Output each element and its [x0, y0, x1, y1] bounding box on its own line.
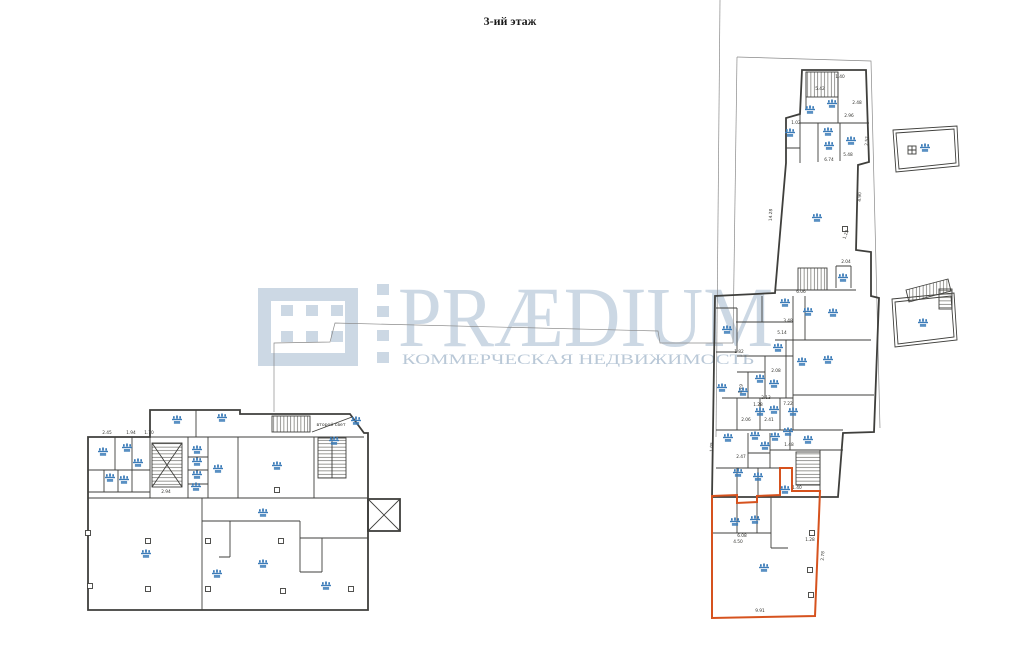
column-symbol — [86, 531, 91, 536]
column-symbol — [146, 587, 151, 592]
dimension-label: 6.74 — [824, 157, 834, 163]
room-marker — [783, 428, 793, 436]
room-marker — [755, 408, 765, 416]
room-marker — [805, 106, 815, 114]
dimension-label: 14.28 — [768, 208, 774, 221]
dimension-label: 2.78 — [820, 551, 827, 561]
left-building-plan: второй свет — [88, 410, 400, 610]
room-marker — [717, 384, 727, 392]
dimension-label: 2.47 — [736, 454, 746, 460]
dimension-label: 2.52 — [864, 136, 871, 146]
staircase — [939, 289, 952, 309]
room-marker — [172, 416, 182, 424]
watermark-tagline: КОММЕРЧЕСКАЯ НЕДВИЖИМОСТЬ — [402, 352, 755, 368]
room-marker — [755, 375, 765, 383]
dimension-label: 3.48 — [783, 318, 793, 324]
room-marker — [258, 560, 268, 568]
room-marker — [788, 408, 798, 416]
dimension-label: 4.50 — [733, 539, 743, 545]
room-marker — [838, 274, 848, 282]
dimension-label: 1.70 — [144, 430, 154, 436]
room-marker — [812, 214, 822, 222]
column-symbol — [809, 593, 814, 598]
scanned-floorplan-page: 3-ий этаж PRÆDIUM КОММЕРЧЕСКАЯ НЕДВИЖИМО… — [0, 0, 1024, 649]
column-symbol — [206, 587, 211, 592]
highlighted-area — [712, 468, 820, 618]
staircase — [796, 452, 820, 485]
dimension-label: 1.82 — [734, 349, 744, 355]
room-marker — [769, 380, 779, 388]
column-symbol — [146, 539, 151, 544]
room-marker — [773, 344, 783, 352]
room-marker — [122, 444, 132, 452]
room-marker — [213, 465, 223, 473]
room-marker — [217, 414, 227, 422]
dimension-label: 1.28 — [753, 402, 763, 408]
room-marker — [730, 518, 740, 526]
praedium-logo-icon — [258, 284, 389, 366]
room-marker — [918, 319, 928, 327]
room-marker — [823, 128, 833, 136]
floor-plan-svg: 3-ий этаж PRÆDIUM КОММЕРЧЕСКАЯ НЕДВИЖИМО… — [0, 0, 1024, 649]
room-marker — [827, 100, 837, 108]
dimension-label: 5.48 — [843, 152, 853, 158]
dimension-label: 2.06 — [741, 417, 751, 423]
column-symbol — [88, 584, 93, 589]
dimension-label: 6.06 — [796, 289, 806, 295]
room-marker — [192, 471, 202, 479]
column-symbol — [808, 568, 813, 573]
room-marker — [750, 432, 760, 440]
column-symbol — [275, 488, 280, 493]
dimension-label: 6.08 — [737, 533, 747, 539]
dimension-label: 2.45 — [102, 430, 112, 436]
room-marker — [770, 433, 780, 441]
dimension-label: 5.14 — [777, 330, 787, 336]
column-symbol — [281, 589, 286, 594]
second-light-label: второй свет — [316, 421, 345, 428]
dimension-label: 1.40 — [835, 74, 845, 80]
room-marker — [192, 446, 202, 454]
dimension-label: 2.08 — [771, 368, 781, 374]
room-marker — [105, 474, 115, 482]
column-symbol — [206, 539, 211, 544]
room-marker — [780, 486, 790, 494]
room-marker — [141, 550, 151, 558]
dimension-label: 2.96 — [844, 113, 854, 119]
dimension-label: 1.02 — [791, 120, 801, 126]
room-marker — [733, 469, 743, 477]
dimension-label: 2.13 — [761, 395, 771, 401]
room-marker — [823, 356, 833, 364]
room-marker — [119, 476, 129, 484]
room-marker — [272, 462, 282, 470]
room-marker — [769, 406, 779, 414]
room-marker — [846, 137, 856, 145]
watermark: PRÆDIUM КОММЕРЧЕСКАЯ НЕДВИЖИМОСТЬ — [258, 269, 773, 368]
room-marker — [191, 483, 201, 491]
staircase — [806, 72, 838, 97]
dimension-label: 1.40 — [792, 485, 802, 491]
detached-rooms — [892, 126, 959, 347]
room-marker — [212, 570, 222, 578]
room-marker — [750, 516, 760, 524]
room-marker — [98, 448, 108, 456]
dimension-label: 4.90 — [857, 192, 863, 202]
room-marker — [351, 417, 361, 425]
staircase — [272, 416, 310, 432]
room-marker — [753, 473, 763, 481]
page-title: 3-ий этаж — [484, 14, 537, 28]
dimension-label: 1.19 — [737, 383, 745, 394]
equipment-symbol — [908, 146, 916, 154]
room-marker — [780, 299, 790, 307]
staircase — [798, 268, 827, 290]
dimension-label: 1.05 — [709, 442, 715, 452]
column-symbol — [810, 531, 815, 536]
column-symbol — [279, 539, 284, 544]
room-marker — [133, 459, 143, 467]
dimension-label: 9.91 — [755, 608, 765, 614]
room-marker — [920, 144, 930, 152]
column-symbol — [349, 587, 354, 592]
dimension-label: 2.48 — [852, 100, 862, 106]
room-marker — [824, 142, 834, 150]
dimension-label: 5.42 — [815, 86, 825, 92]
dimension-label: 1.28 — [805, 537, 815, 543]
dimension-label: 2.04 — [841, 259, 851, 265]
dimension-label: 2.94 — [161, 489, 171, 495]
dimension-label: 1.94 — [126, 430, 136, 436]
room-marker — [797, 358, 807, 366]
dimension-label: 1.48 — [784, 442, 794, 448]
room-marker — [803, 436, 813, 444]
room-marker — [759, 564, 769, 572]
room-marker — [760, 442, 770, 450]
room-marker — [321, 582, 331, 590]
room-marker — [723, 434, 733, 442]
room-marker — [192, 458, 202, 466]
room-marker — [258, 509, 268, 517]
dimension-label: 2.41 — [764, 417, 774, 423]
room-marker — [828, 309, 838, 317]
dimension-label: 7.22 — [783, 401, 793, 407]
boundary-lines — [274, 0, 880, 437]
room-marker — [803, 308, 813, 316]
